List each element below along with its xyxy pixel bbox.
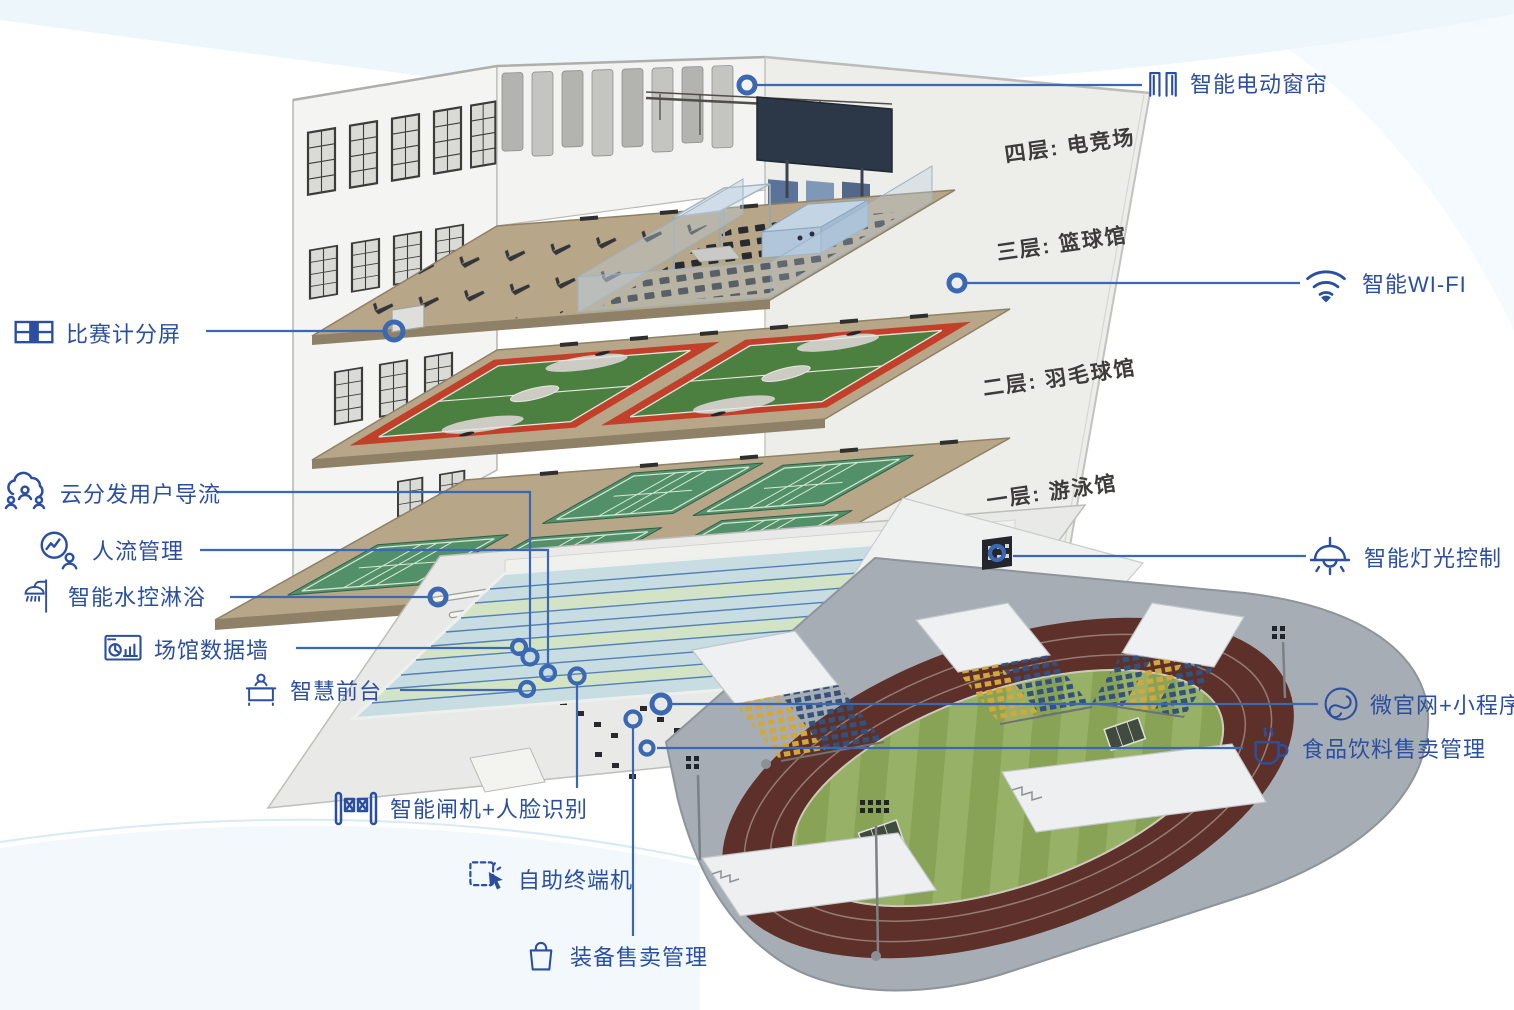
callout-smart-curtain: 智能电动窗帘 [1146,66,1328,100]
people-flow-icon [36,527,82,573]
callout-label: 自助终端机 [518,863,633,895]
shower-icon [20,577,58,615]
callout-label: 智能灯光控制 [1364,541,1502,573]
smart-stadium-diagram: 四层: 电竞场 三层: 篮球馆 二层: 羽毛球馆 一层: 游泳馆 智能电动窗帘 … [0,0,1514,1010]
cloud-users-icon [2,469,50,517]
callout-scoreboard: 比赛计分屏 [12,311,181,355]
mini-program-icon [1322,685,1360,723]
callout-label: 场馆数据墙 [154,633,269,665]
shopping-bag-icon [522,937,560,975]
front-desk-icon [242,671,280,709]
curtain-icon [1146,66,1180,100]
turnstile-icon [332,784,380,832]
callout-label: 人流管理 [92,534,184,566]
callout-food-beverage: 食品饮料售卖管理 [1246,725,1486,771]
callout-front-desk: 智慧前台 [242,671,382,709]
callout-smart-wifi: 智能WI-FI [1300,257,1467,309]
callout-label: 智能闸机+人脸识别 [390,792,588,824]
stadium-illustration [0,0,1514,1010]
callout-label: 装备售卖管理 [570,940,708,972]
callout-cloud-distribution: 云分发用户导流 [2,469,221,517]
touch-kiosk-icon [466,858,508,900]
callout-label: 比赛计分屏 [66,317,181,349]
callout-label: 云分发用户导流 [60,477,221,509]
callout-label: 智能电动窗帘 [1190,67,1328,99]
callout-label: 智能水控淋浴 [68,580,206,612]
callout-self-service-kiosk: 自助终端机 [466,858,633,900]
light-panel [982,536,1012,570]
callout-crowd-management: 人流管理 [36,527,184,573]
callout-label: 食品饮料售卖管理 [1302,732,1486,764]
callout-label: 智慧前台 [290,674,382,706]
data-wall-icon [102,628,144,670]
callout-label: 智能WI-FI [1362,267,1467,299]
callout-smart-lighting: 智能灯光控制 [1306,533,1502,581]
callout-mini-program: 微官网+小程序 [1322,685,1514,723]
wifi-icon [1300,257,1352,309]
callout-smart-shower: 智能水控淋浴 [20,577,206,615]
beverage-cup-icon [1246,725,1292,771]
callout-label: 微官网+小程序 [1370,688,1514,720]
callout-equipment-sales: 装备售卖管理 [522,937,708,975]
scoreboard-panel [392,305,424,332]
callout-data-wall: 场馆数据墙 [102,628,269,670]
scoreboard-icon [12,311,56,355]
callout-smart-gate: 智能闸机+人脸识别 [332,784,588,832]
pendant-lamp-icon [1306,533,1354,581]
